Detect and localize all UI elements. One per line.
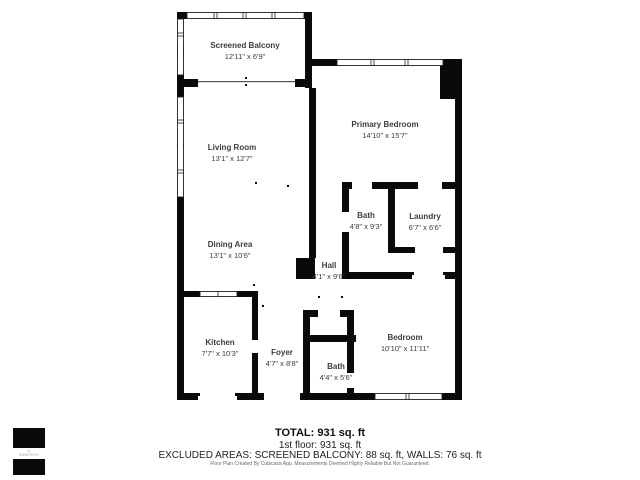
room-name: Bath [350,210,383,221]
room-label-laundry: Laundry 6'7" x 6'6" [409,211,442,233]
room-dimensions: 4'4" x 5'6" [320,372,353,383]
logo-text: SMARTPIX [19,453,39,457]
room-name: Foyer [266,347,299,358]
room-label-hall: Hall 4'1" x 9'6" [313,260,346,282]
room-dimensions: 12'11" x 6'9" [210,51,279,62]
room-name: Screened Balcony [210,40,279,51]
floor-plan: Screened Balcony 12'11" x 6'9" Living Ro… [0,0,640,480]
floor-plan-walls [0,0,640,480]
summary-disclaimer: Floor Plan Created By Cubicasa App. Meas… [0,461,640,467]
logo-block-bottom [13,459,45,475]
room-name: Kitchen [202,337,239,348]
room-name: Dining Area [208,239,253,250]
room-dimensions: 4'8" x 9'3" [350,221,383,232]
room-name: Bath [320,361,353,372]
room-label-bath-second: Bath 4'4" x 5'6" [320,361,353,383]
room-dimensions: 7'7" x 10'3" [202,348,239,359]
room-label-bedroom: Bedroom 10'10" x 11'11" [381,332,429,354]
room-name: Living Room [208,142,256,153]
room-label-bath-primary: Bath 4'8" x 9'3" [350,210,383,232]
room-label-kitchen: Kitchen 7'7" x 10'3" [202,337,239,359]
room-dimensions: 13'1" x 12'7" [208,153,256,164]
room-name: Hall [313,260,346,271]
room-label-primary-bedroom: Primary Bedroom 14'10" x 15'7" [351,119,418,141]
room-dimensions: 6'7" x 6'6" [409,222,442,233]
room-dimensions: 14'10" x 15'7" [351,130,418,141]
room-dimensions: 13'1" x 10'6" [208,250,253,261]
room-label-dining-area: Dining Area 13'1" x 10'6" [208,239,253,261]
room-name: Laundry [409,211,442,222]
room-label-screened-balcony: Screened Balcony 12'11" x 6'9" [210,40,279,62]
watermark-logo: ⌂ SMARTPIX [13,428,45,475]
room-name: Bedroom [381,332,429,343]
room-name: Primary Bedroom [351,119,418,130]
room-dimensions: 4'7" x 8'8" [266,358,299,369]
room-label-living-room: Living Room 13'1" x 12'7" [208,142,256,164]
room-dimensions: 10'10" x 11'11" [381,343,429,354]
summary-excluded-areas: EXCLUDED AREAS: SCREENED BALCONY: 88 sq.… [0,450,640,461]
room-dimensions: 4'1" x 9'6" [313,271,346,282]
summary-total: TOTAL: 931 sq. ft [0,427,640,439]
logo-middle: ⌂ SMARTPIX [13,448,45,458]
logo-block-top [13,428,45,448]
room-label-foyer: Foyer 4'7" x 8'8" [266,347,299,369]
